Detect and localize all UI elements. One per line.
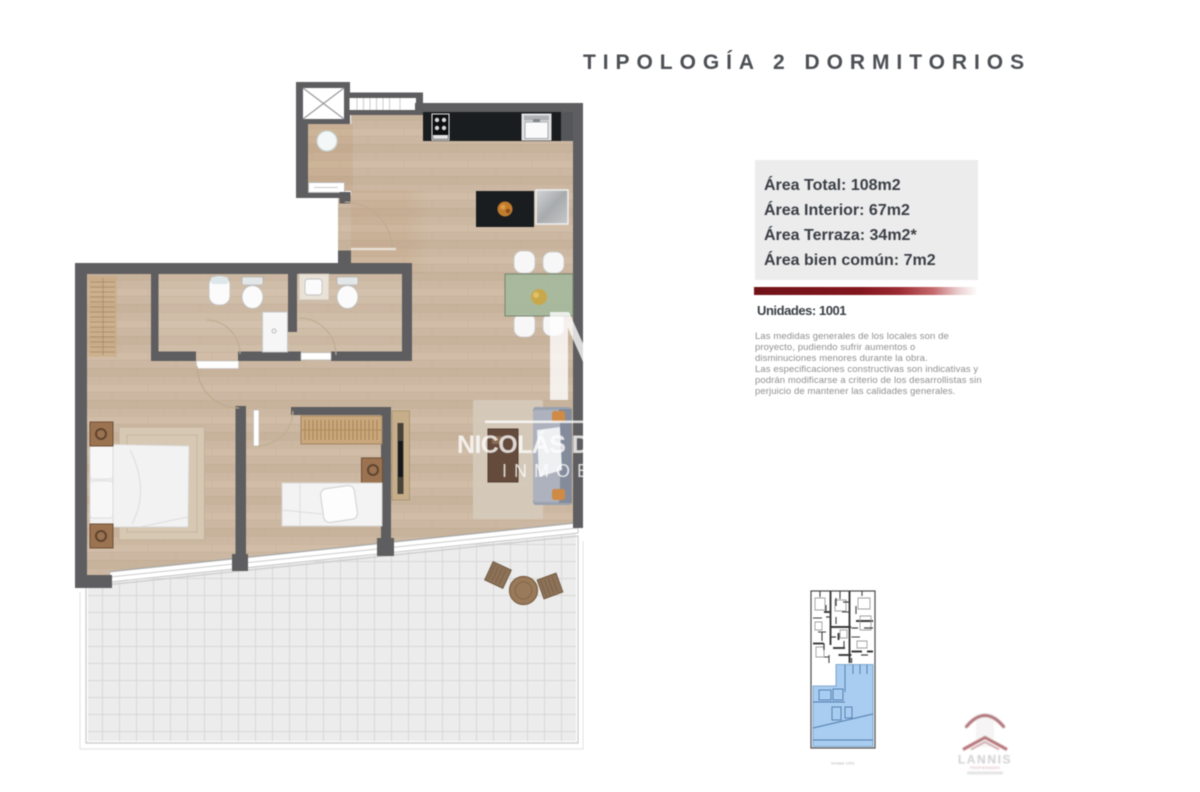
svg-text:PROPIEDADES: PROPIEDADES: [970, 766, 1000, 770]
svg-text:NICOLÁS DÍAZ: NICOLÁS DÍAZ: [457, 430, 628, 459]
svg-text:Unidad 1001: Unidad 1001: [831, 762, 855, 766]
svg-text:LANNIS: LANNIS: [958, 753, 1012, 767]
svg-text:INMOBILIARIA: INMOBILIARIA: [502, 461, 707, 481]
